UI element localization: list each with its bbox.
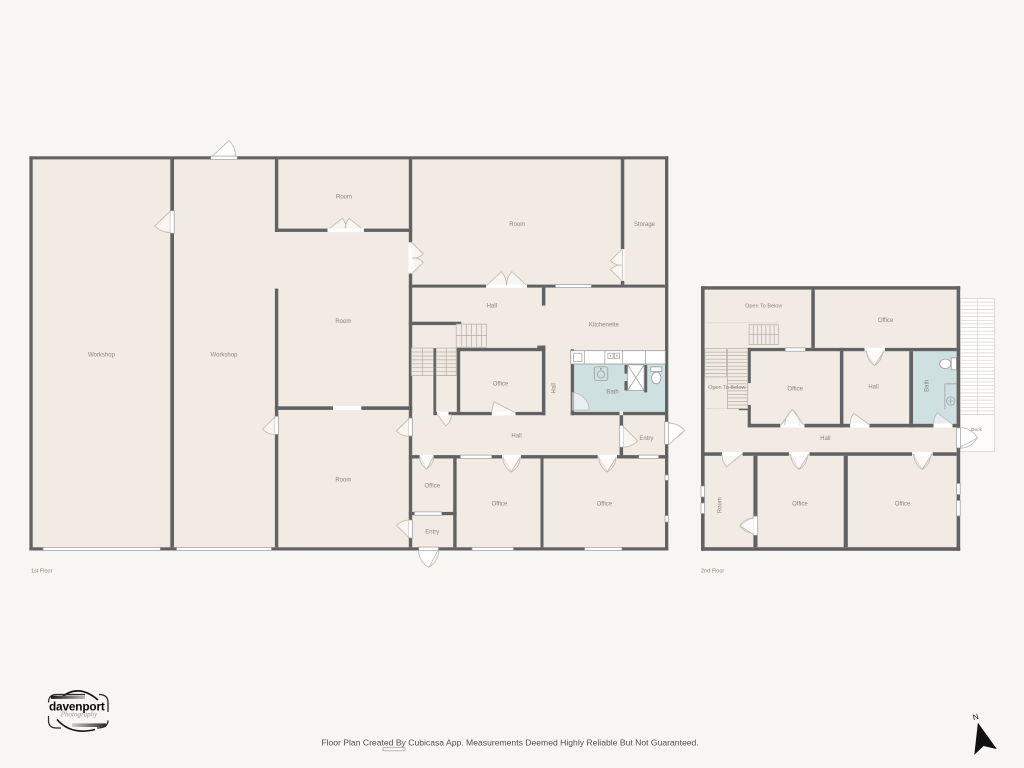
svg-text:Photography: Photography [60,711,98,719]
svg-text:Room: Room [335,478,351,484]
svg-text:Office: Office [895,501,911,507]
svg-text:Office: Office [425,484,441,490]
svg-text:Floor Plan Created By Cubicasa: Floor Plan Created By Cubicasa App. Meas… [321,738,698,748]
svg-text:Storage: Storage [634,222,656,228]
svg-text:Open To Below: Open To Below [745,304,782,310]
svg-text:Entry: Entry [425,529,439,535]
svg-text:Hall: Hall [868,385,878,391]
svg-text:Office: Office [597,502,613,508]
svg-text:Room: Room [335,319,351,325]
svg-text:Office: Office [878,318,894,324]
svg-text:Workshop: Workshop [211,353,239,359]
svg-text:Office: Office [787,386,803,392]
svg-text:1st Floor: 1st Floor [31,569,53,575]
svg-text:Kitchenette: Kitchenette [589,322,620,328]
svg-text:Room: Room [336,195,352,201]
svg-text:Office: Office [492,502,508,508]
svg-text:Workshop: Workshop [88,353,116,359]
svg-text:Hall: Hall [551,383,557,393]
svg-text:Open To Below: Open To Below [708,385,745,391]
svg-text:2nd Floor: 2nd Floor [701,569,724,575]
svg-text:Bath: Bath [606,390,618,396]
svg-text:Room: Room [717,497,723,513]
svg-text:Office: Office [792,501,808,507]
svg-text:Hall: Hall [511,433,521,439]
svg-text:Room: Room [509,222,525,228]
svg-text:Hall: Hall [820,436,830,442]
svg-text:Bath: Bath [924,380,930,392]
svg-text:Hall: Hall [487,304,497,310]
svg-text:Office: Office [493,381,509,387]
svg-text:Entry: Entry [639,436,653,442]
